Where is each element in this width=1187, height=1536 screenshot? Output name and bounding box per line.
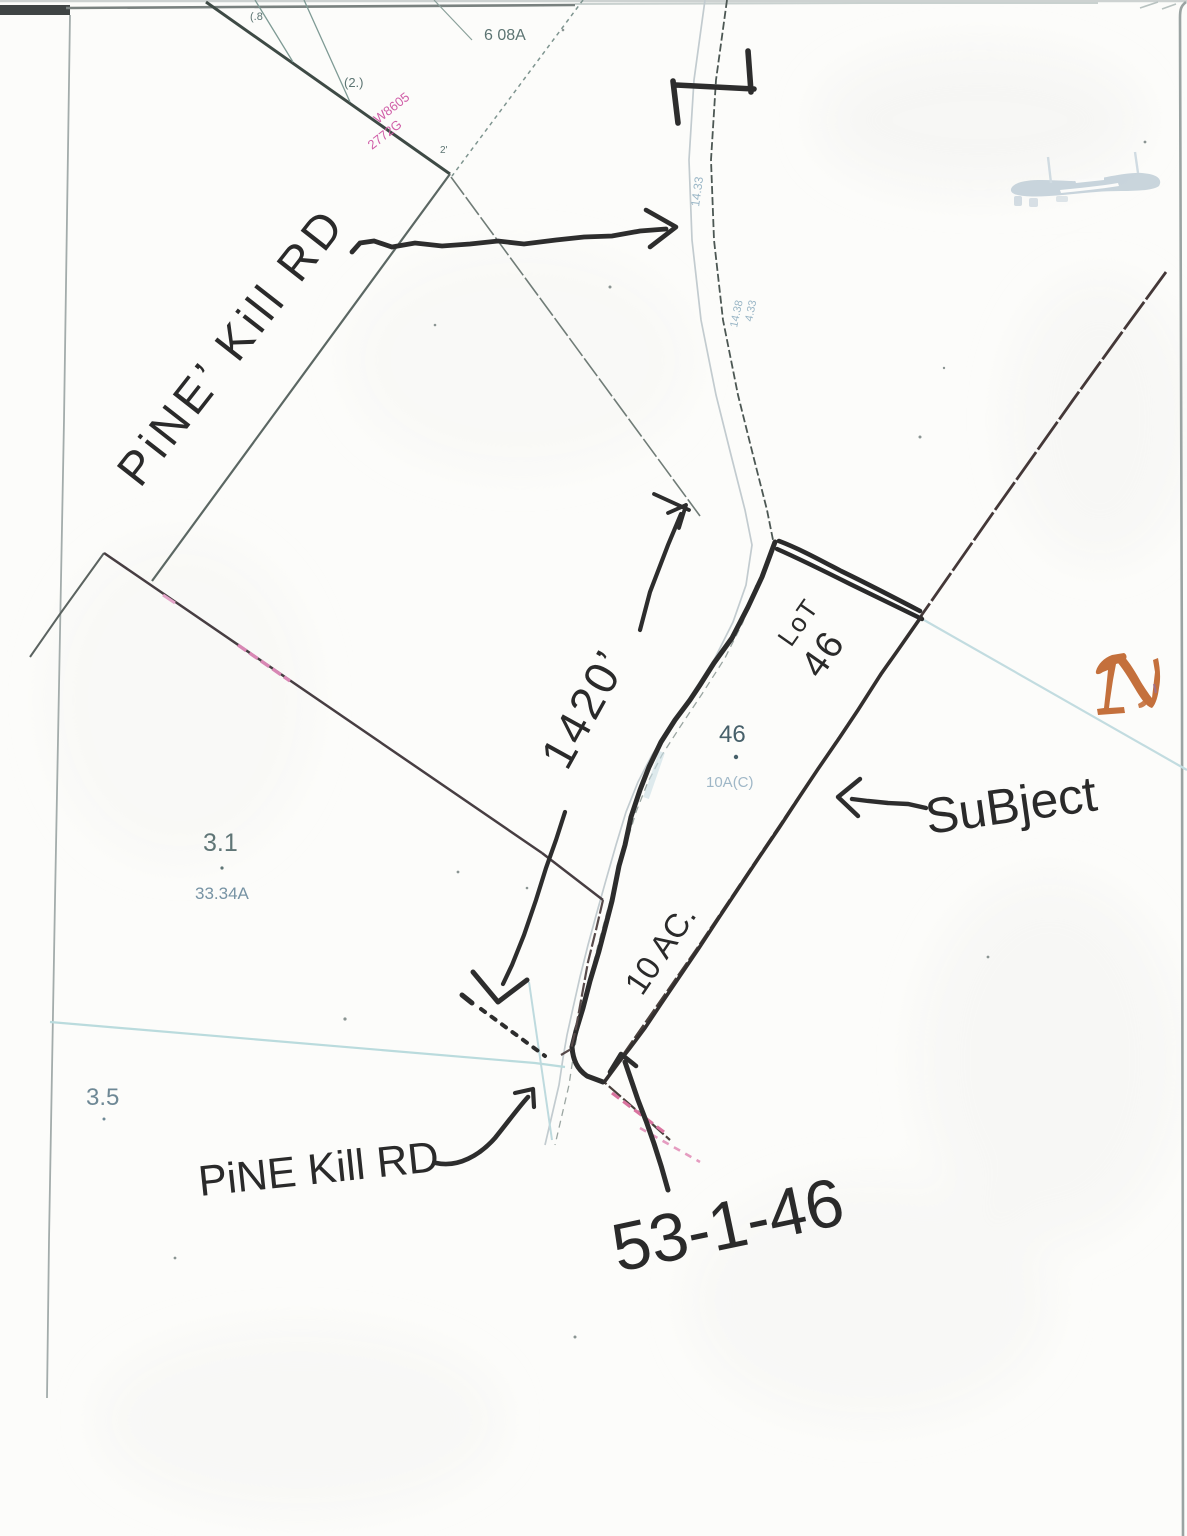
svg-text:33.34A: 33.34A xyxy=(195,884,250,903)
svg-text:10A(C): 10A(C) xyxy=(706,774,754,791)
svg-text:3.5: 3.5 xyxy=(86,1084,119,1111)
svg-text:2': 2' xyxy=(440,145,448,156)
svg-text:3.1: 3.1 xyxy=(203,829,238,857)
svg-text:6 08A: 6 08A xyxy=(484,27,526,44)
svg-text:(.8: (.8 xyxy=(250,11,263,23)
svg-text:46: 46 xyxy=(719,721,746,748)
svg-text:(2.): (2.) xyxy=(344,75,364,90)
